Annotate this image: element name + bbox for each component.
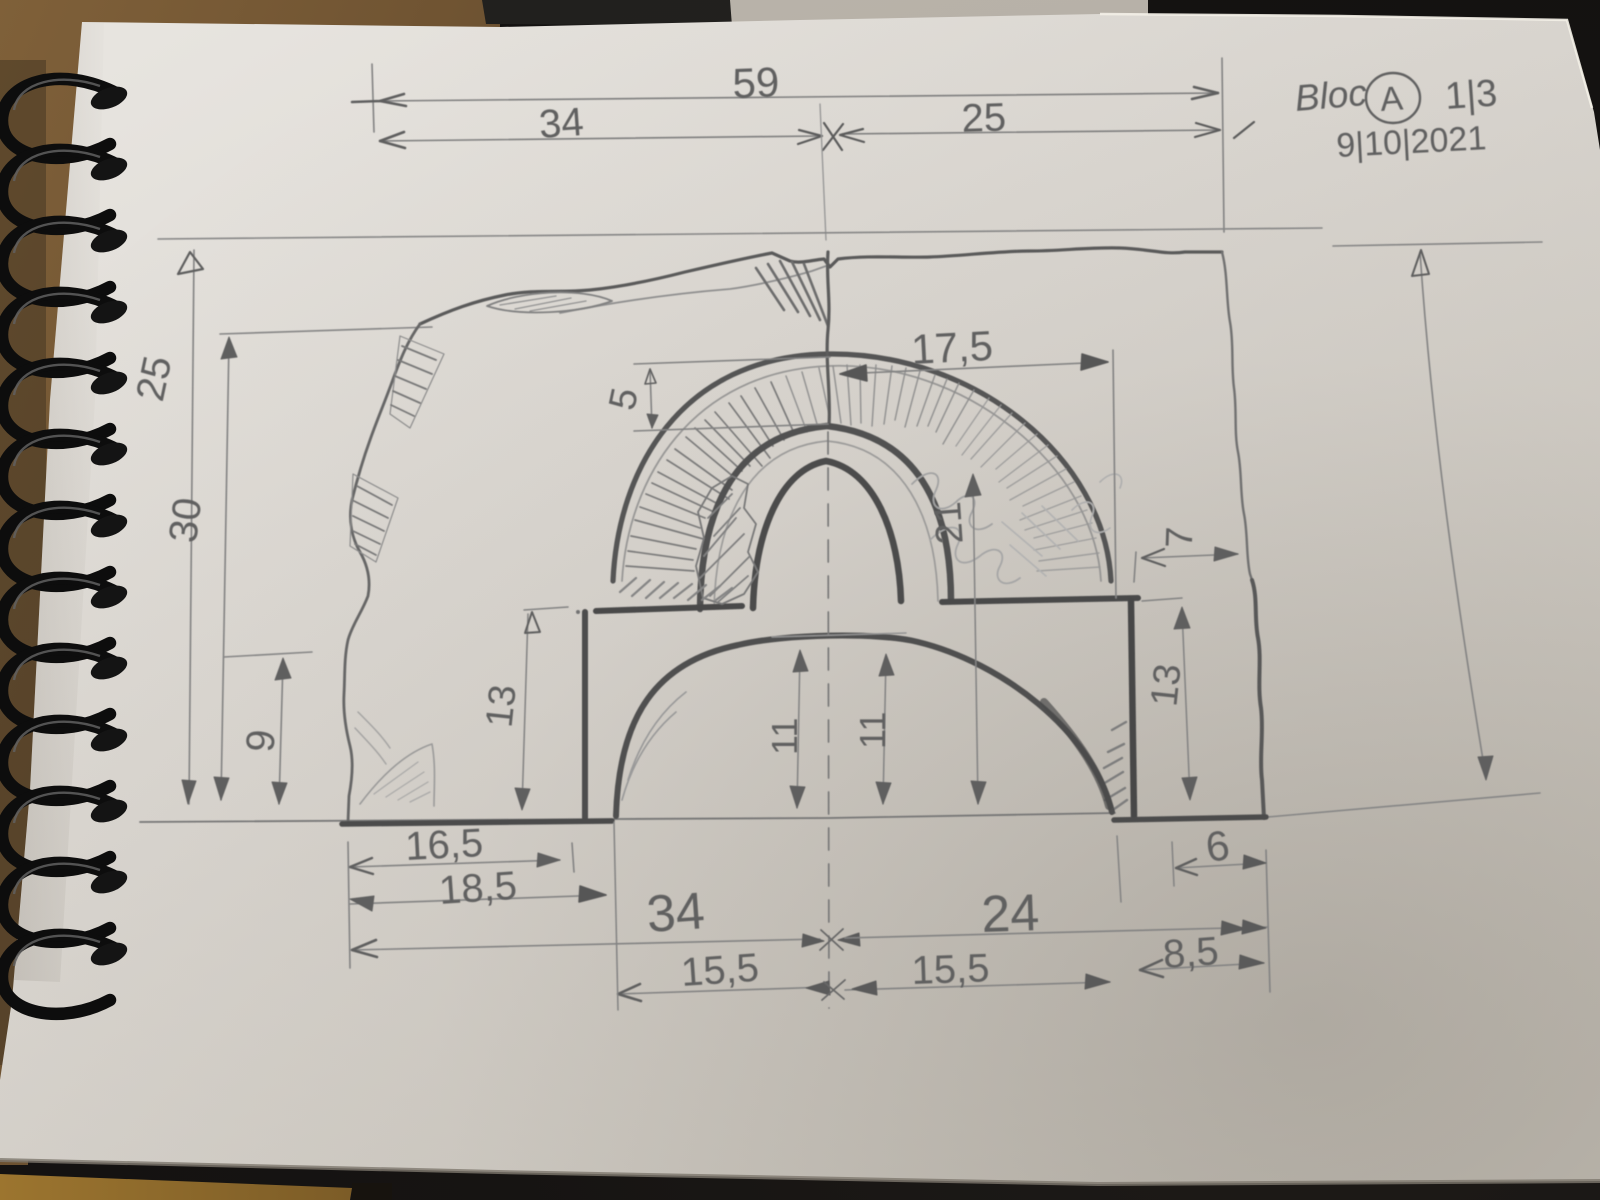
svg-text:18,5: 18,5: [438, 864, 519, 913]
svg-text:34: 34: [538, 100, 585, 147]
svg-text:11: 11: [764, 718, 805, 755]
svg-text:13: 13: [479, 683, 525, 729]
svg-text:11: 11: [852, 712, 893, 749]
svg-text:9|10|2021: 9|10|2021: [1335, 119, 1487, 165]
svg-text:1|3: 1|3: [1444, 72, 1499, 118]
svg-text:A: A: [1379, 79, 1405, 119]
svg-text:17,5: 17,5: [910, 322, 994, 373]
svg-text:59: 59: [732, 58, 780, 107]
svg-text:8,5: 8,5: [1162, 929, 1221, 977]
svg-text:16,5: 16,5: [404, 821, 484, 869]
svg-text:13: 13: [1143, 662, 1189, 708]
svg-text:30: 30: [161, 495, 210, 545]
svg-text:25: 25: [961, 95, 1007, 141]
svg-text:34: 34: [645, 882, 707, 944]
svg-text:15,5: 15,5: [680, 946, 761, 995]
svg-text:Bloc: Bloc: [1293, 72, 1369, 119]
svg-text:21: 21: [927, 500, 972, 545]
svg-text:7: 7: [1159, 526, 1202, 549]
svg-text:24: 24: [980, 884, 1040, 944]
svg-text:25: 25: [128, 352, 180, 405]
svg-text:15,5: 15,5: [911, 946, 990, 993]
svg-text:9: 9: [238, 728, 284, 754]
